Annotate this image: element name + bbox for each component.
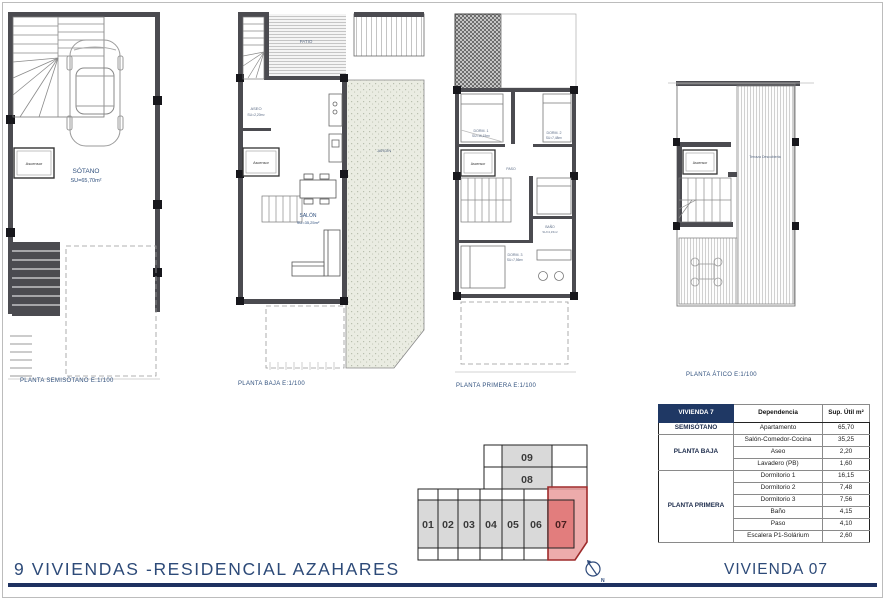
row-value: 65,70 <box>823 423 870 435</box>
row-name: Lavadero (PB) <box>734 459 823 471</box>
upper-units <box>484 445 587 489</box>
row-value: 4,15 <box>823 507 870 519</box>
lift-label: Ascensor <box>693 161 708 165</box>
row-name: Dormitorio 1 <box>734 471 823 483</box>
site-unit-02: 02 <box>442 519 454 531</box>
patio-label: PATIO <box>300 39 313 44</box>
lift-label: Ascensor <box>26 161 43 166</box>
driveway-outline <box>66 246 156 376</box>
stairs-icon <box>679 178 731 222</box>
entry-steps-icon <box>10 336 32 376</box>
footer-rule <box>8 583 877 587</box>
row-value: 1,60 <box>823 459 870 471</box>
mid-stairs-icon <box>262 196 302 222</box>
dorm2-area: SU=7,48m² <box>546 136 562 140</box>
lift-label: Ascensor <box>253 161 270 165</box>
site-unit-06: 06 <box>530 519 542 531</box>
project-title: 9 VIVIENDAS -RESIDENCIAL AZAHARES <box>14 559 400 580</box>
street-stairs-icon <box>12 242 60 316</box>
row-name: Paso <box>734 519 823 531</box>
site-unit-08: 08 <box>521 474 533 486</box>
lift-label: Ascensor <box>471 162 486 166</box>
parapet-wall <box>676 81 800 86</box>
highlighted-unit-07: 07 <box>548 487 587 560</box>
row-value: 2,60 <box>823 531 870 543</box>
aseo-area: SU=2,20m² <box>247 113 265 117</box>
lift-box: Ascensor <box>461 150 495 176</box>
site-unit-01: 01 <box>422 519 434 531</box>
terrace-outline <box>461 302 568 364</box>
unit-title: VIVIENDA 07 <box>724 561 828 579</box>
row-value: 7,56 <box>823 495 870 507</box>
caption-baja: PLANTA BAJA E:1/100 <box>238 381 305 387</box>
row-name: Dormitorio 3 <box>734 495 823 507</box>
bathroom-fixtures-icon <box>537 250 571 281</box>
table-title: VIVIENDA 7 <box>659 405 734 423</box>
dorm2-label: DORM. 2 <box>547 131 562 135</box>
bano-area: SU=4,15m² <box>542 230 557 234</box>
porch-outline <box>266 306 344 368</box>
lift-box: Ascensor <box>14 148 54 178</box>
site-unit-03: 03 <box>463 519 475 531</box>
jardin-label: JARDÍN <box>377 148 392 153</box>
paso-label: PASO <box>506 167 516 171</box>
terrace-label: Terraza Descubierta <box>749 155 780 159</box>
plan-atico-drawing: Ascensor Terraza Descubierta <box>666 76 818 324</box>
lift-box: Ascensor <box>243 148 279 176</box>
floor-baja: PLANTA BAJA <box>659 435 734 471</box>
dorm3-area: SU=7,56m² <box>507 258 523 262</box>
void-outline <box>501 14 576 88</box>
dining-table-icon <box>300 174 336 204</box>
plan-semisotano-drawing: Ascensor SÓTANO SU=65,70m² <box>6 10 168 382</box>
salon-label: SALÓN <box>300 212 317 219</box>
site-unit-07: 07 <box>555 519 567 531</box>
row-name: Baño <box>734 507 823 519</box>
areas-table: VIVIENDA 7 Dependencia Sup. Útil m² SEMI… <box>658 404 870 543</box>
plan-primera-drawing: DORM. 1 SU=16,15m² DORM. 2 SU=7,48m² Asc… <box>453 10 578 378</box>
floor-semisotano: SEMISÓTANO <box>659 423 734 435</box>
room-area-sotano: SU=65,70m² <box>70 178 101 184</box>
row-name: Apartamento <box>734 423 823 435</box>
deck-right <box>737 86 794 304</box>
plan-baja-drawing: PATIO ASEO SU=2,20m² Ascensor <box>236 10 428 378</box>
site-unit-05: 05 <box>507 519 519 531</box>
pergola-hatch <box>455 14 501 90</box>
bano-label: BAÑO <box>545 224 555 229</box>
dorm1-label: DORM. 1 <box>474 129 489 133</box>
row-name: Escalera P1-Solárium <box>734 531 823 543</box>
row-value: 2,20 <box>823 447 870 459</box>
caption-atico: PLANTA ÁTICO E:1/100 <box>686 372 757 378</box>
kitchen-icon <box>329 94 342 162</box>
row-name: Dormitorio 2 <box>734 483 823 495</box>
stairs-icon <box>461 178 511 222</box>
room-label-sotano: SÓTANO <box>73 166 100 175</box>
site-key-diagram: 09 08 01 02 03 04 05 06 07 N <box>405 438 615 586</box>
row-value: 16,15 <box>823 471 870 483</box>
deck-bottom <box>679 238 737 304</box>
north-arrow-icon <box>586 560 600 576</box>
row-value: 7,48 <box>823 483 870 495</box>
main-row-block <box>418 489 548 560</box>
dorm1-area: SU=16,15m² <box>472 134 490 138</box>
col-sup: Sup. Útil m² <box>823 405 870 423</box>
stairs-icon <box>13 17 104 117</box>
stairs-icon <box>243 17 264 79</box>
salon-area: SU=35,25m² <box>297 220 320 225</box>
patio-area <box>266 14 346 78</box>
caption-semisotano: PLANTA SEMISÓTANO E:1/100 <box>20 378 114 384</box>
caption-primera: PLANTA PRIMERA E:1/100 <box>456 383 536 389</box>
sofa-icon <box>292 230 340 276</box>
exterior-stair-icon <box>354 14 424 56</box>
row-value: 35,25 <box>823 435 870 447</box>
dorm3-label: DORM. 3 <box>508 253 523 257</box>
lift-box: Ascensor <box>683 150 717 174</box>
garden-area <box>346 80 424 368</box>
plan-sheet: Ascensor SÓTANO SU=65,70m² <box>0 0 885 600</box>
aseo-label: ASEO <box>250 106 261 111</box>
site-unit-09: 09 <box>521 452 533 464</box>
row-name: Aseo <box>734 447 823 459</box>
col-dependencia: Dependencia <box>734 405 823 423</box>
porch-hatch <box>270 362 334 370</box>
row-value: 4,10 <box>823 519 870 531</box>
floor-primera: PLANTA PRIMERA <box>659 471 734 543</box>
row-name: Salón-Comedor-Cocina <box>734 435 823 447</box>
site-unit-04: 04 <box>485 519 497 531</box>
